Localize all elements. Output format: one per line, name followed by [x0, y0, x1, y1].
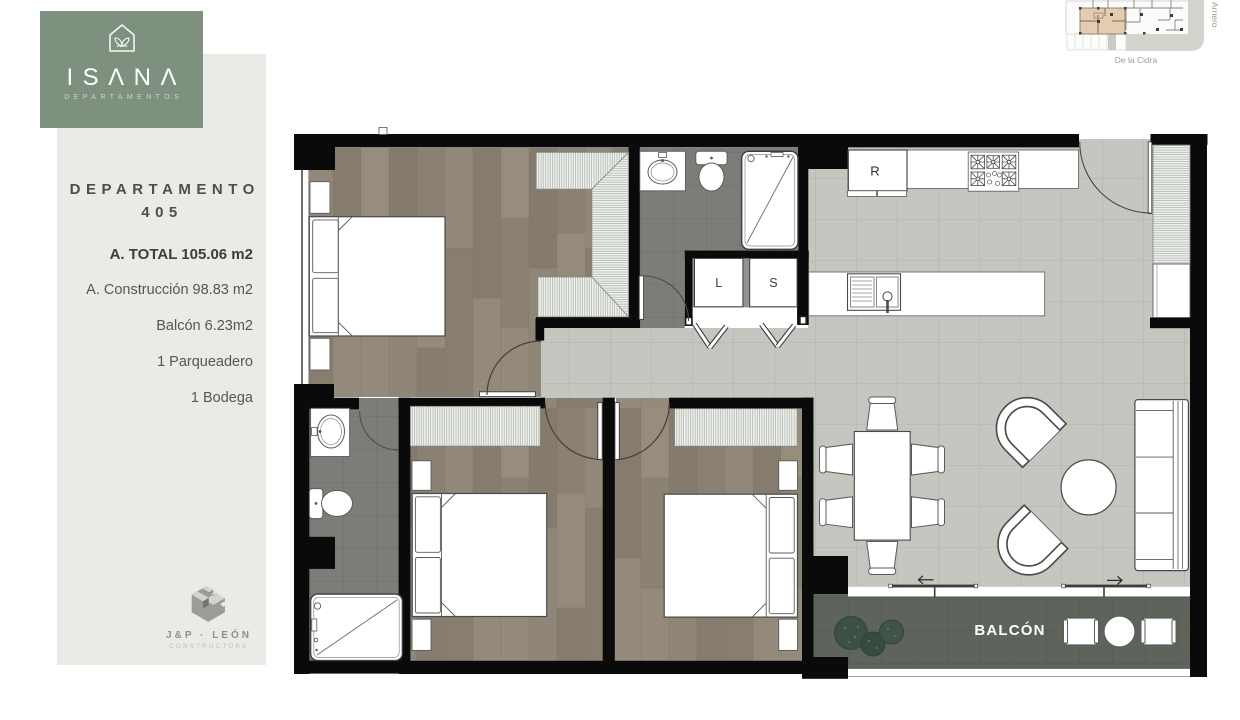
svg-text:De la Cidra: De la Cidra	[1115, 55, 1158, 65]
svg-text:Arriero: Arriero	[1210, 2, 1220, 28]
svg-text:BALCÓN: BALCÓN	[974, 621, 1045, 639]
svg-text:S: S	[769, 276, 777, 290]
svg-text:R: R	[870, 164, 879, 179]
svg-text:L: L	[715, 276, 722, 290]
